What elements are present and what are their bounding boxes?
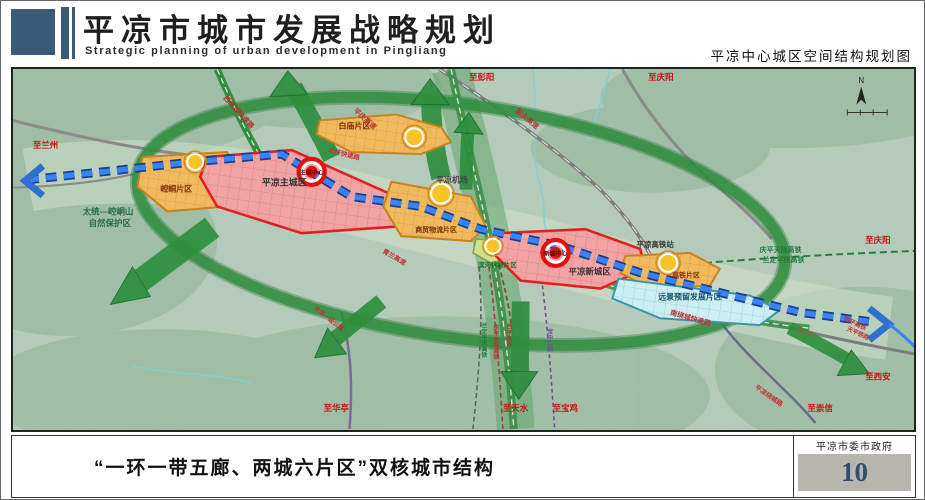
header-bar-thick: [61, 7, 69, 59]
label-to-pengyang: 至彭阳: [469, 72, 494, 82]
node-leisure: [483, 236, 503, 256]
header-bar-thin: [72, 7, 75, 59]
planning-document-page: 平凉市城市发展战略规划 Strategic planning of urban …: [0, 0, 925, 500]
node-baimiao: [402, 125, 426, 149]
map-title: 平凉中心城区空间结构规划图: [711, 45, 913, 65]
label-v-baozhong-line: 宝中二线: [546, 327, 553, 353]
label-main-city-center: 主城中心: [300, 168, 324, 176]
label-main-city: 平凉主城区: [262, 177, 307, 188]
label-to-baoji: 至宝鸡: [553, 403, 579, 413]
label-to-tianshui: 至天水: [503, 403, 529, 413]
label-to-huating: 至华亭: [324, 403, 350, 413]
label-to-lanzhou: 至兰州: [33, 140, 58, 150]
label-kongtong-district: 崆峒片区: [160, 184, 192, 194]
label-hsr-station: 平凉高铁站: [636, 239, 674, 249]
label-new-city: 平凉新城区: [569, 267, 612, 277]
footer-page-area: 平凉市委市政府 10: [793, 436, 915, 497]
label-trade-logistics-district: 商贸物流片区: [415, 225, 457, 234]
page-number-box: 10: [798, 454, 911, 491]
label-to-chongxin: 至崇信: [807, 403, 833, 413]
label-new-city-center: 新城中心: [544, 249, 568, 257]
logo-square: [11, 9, 55, 55]
header: 平凉市城市发展战略规划 Strategic planning of urban …: [1, 1, 925, 65]
label-to-xian: 至西安: [865, 372, 891, 382]
planning-map: N 至兰州 太统—崆峒山 自然保护区 崆峒片区 西绕城快速路 白庙片区 平庆高速…: [13, 69, 914, 430]
label-to-qingyang-right: 至庆阳: [865, 235, 890, 245]
label-airport: 平凉机场: [436, 175, 468, 185]
label-leisure-district: 滨河休憩片区: [478, 260, 517, 269]
page-number: 10: [841, 457, 868, 488]
label-hsr-district: 高铁片区: [672, 271, 700, 280]
page-subtitle-en: Strategic planning of urban development …: [85, 45, 448, 57]
map-frame: N 至兰州 太统—崆峒山 自然保护区 崆峒片区 西绕城快速路 白庙片区 平庆高速…: [11, 67, 916, 432]
page-title: 平凉市城市发展战略规划: [83, 5, 501, 50]
node-kongtong: [184, 151, 206, 173]
label-to-qingyang-top: 至庆阳: [648, 72, 673, 82]
footer-caption-area: “一环一带五廊、两城六片区”双核城市结构: [12, 436, 793, 497]
label-qingping-tianlong-hsr: 庆平天陇高铁: [759, 245, 802, 254]
label-landing-pingqing-hsr: 兰定平庆高铁: [763, 255, 805, 264]
label-nature-reserve-2: 自然保护区: [89, 218, 132, 228]
label-reserved-district: 远景预留发展片区: [658, 291, 722, 301]
corridor-arrow-s: [520, 301, 521, 377]
node-hsr: [656, 251, 680, 275]
compass-n-label: N: [858, 76, 864, 85]
label-v-xiping-hsr: 西平高铁: [505, 322, 512, 348]
footer: “一环一带五廊、两城六片区”双核城市结构 平凉市委市政府 10: [11, 435, 916, 498]
agency-label: 平凉市委市政府: [794, 436, 915, 454]
structure-caption: “一环一带五廊、两城六片区”双核城市结构: [94, 453, 495, 480]
label-nature-reserve-1: 太统—崆峒山: [82, 206, 134, 216]
